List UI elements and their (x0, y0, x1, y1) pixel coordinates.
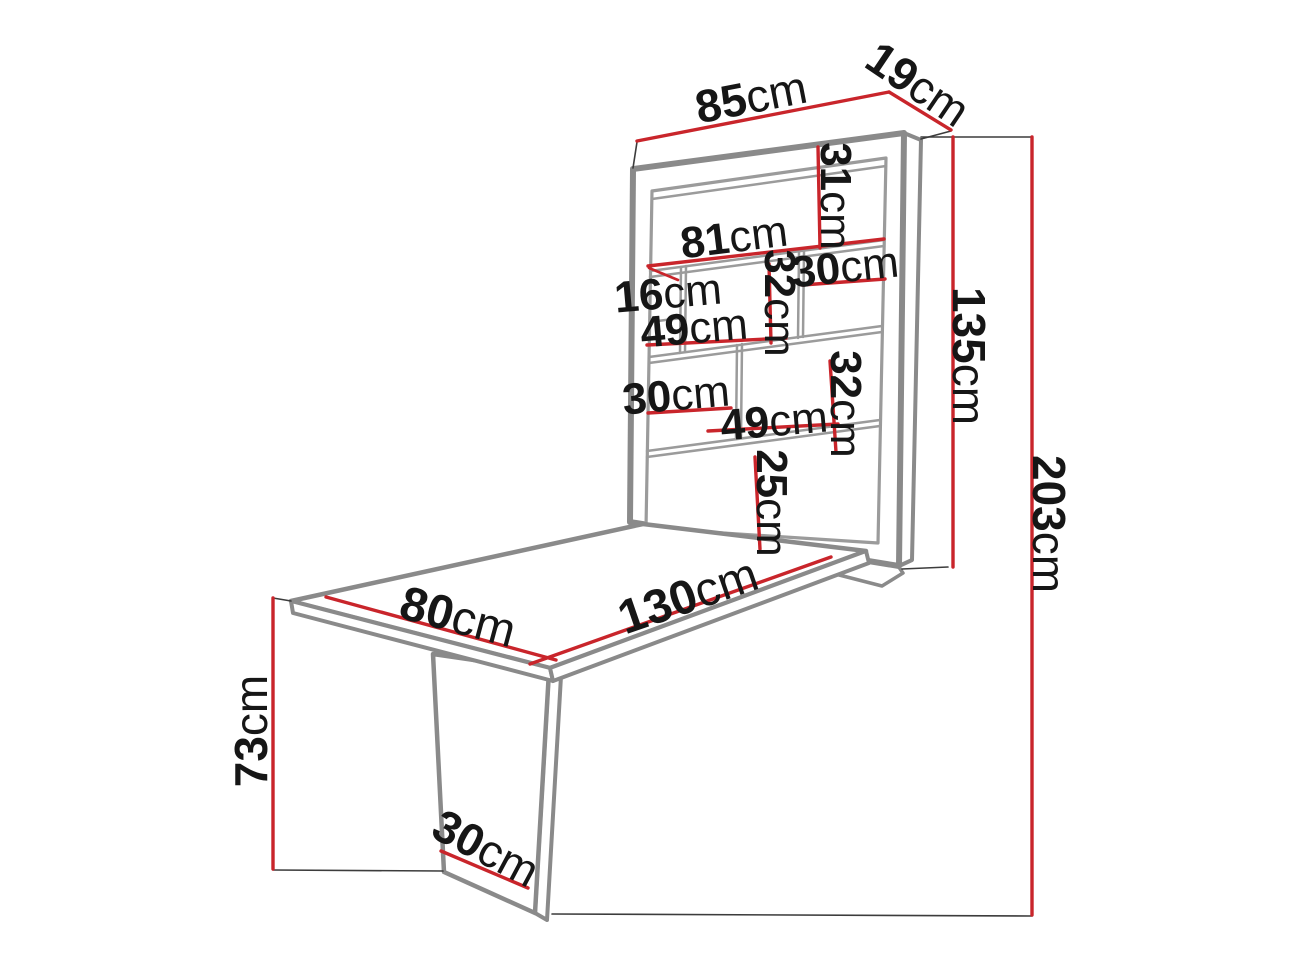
ext-bottom-left (273, 870, 443, 871)
diagram-canvas: 85cm 19cm 31cm 81cm 16cm 32cm 30cm 49cm … (0, 0, 1299, 974)
dim-label-total-height: 203cm (1023, 455, 1075, 593)
dim-label-row3-width: 49cm (718, 392, 829, 450)
dim-label-top-shelf-height: 31cm (812, 142, 861, 250)
dim-label-row3-left-width: 30cm (620, 366, 731, 424)
dim-label-table-height: 73cm (225, 675, 277, 788)
furniture-dimension-diagram: 85cm 19cm 31cm 81cm 16cm 32cm 30cm 49cm … (0, 0, 1299, 974)
dim-label-row2-width: 49cm (638, 299, 749, 357)
dim-label-row3-height: 32cm (822, 350, 871, 458)
dim-label-bottom-shelf-height: 25cm (748, 449, 797, 557)
dim-label-cabinet-height: 135cm (943, 287, 995, 425)
